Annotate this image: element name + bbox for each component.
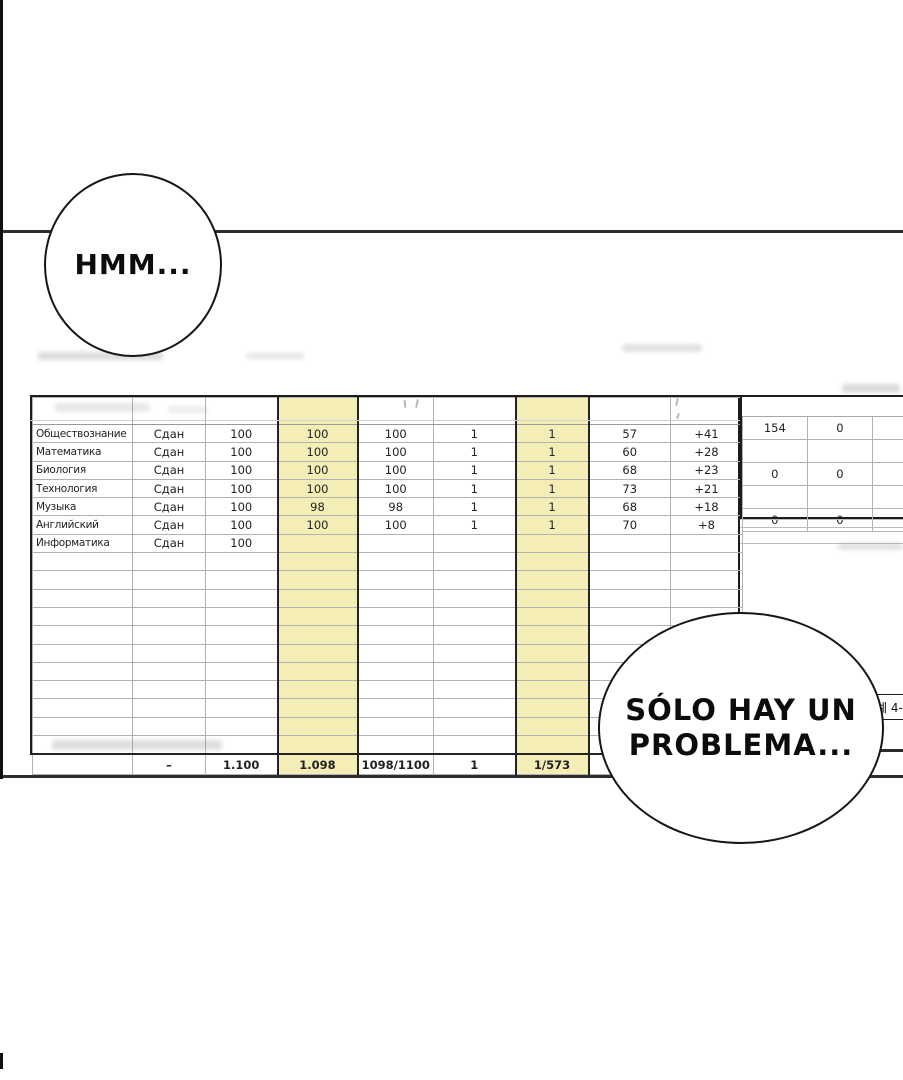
print-smudge (246, 353, 304, 359)
sheet-cell (807, 440, 873, 463)
speech-bubble-hmm: HMM... (44, 173, 222, 357)
sheet-cell (358, 626, 434, 644)
empty-row (33, 553, 743, 571)
sheet-cell: 1/573 (516, 754, 589, 775)
sheet-cell (133, 607, 206, 625)
sheet-cell (278, 571, 358, 589)
summary-row: 000 (743, 509, 903, 532)
header-hairline (30, 420, 740, 421)
sheet-cell (206, 717, 278, 735)
sheet-cell (671, 571, 743, 589)
sheet-cell (206, 626, 278, 644)
speech-text: HMM... (74, 248, 191, 282)
sheet-cell: 1.100 (206, 754, 278, 775)
sheet-cell: Сдан (133, 534, 206, 552)
print-smudge (52, 740, 222, 750)
sheet-cell (516, 534, 589, 552)
sheet-cell (33, 571, 133, 589)
sheet-cell: 57 (589, 425, 671, 443)
sheet-cell: 1 (434, 479, 516, 497)
sheet-cell (434, 681, 516, 699)
comic-page: ОбществознаниеСдан1001001001157+41Матема… (0, 0, 903, 1080)
sheet-cell: 100 (358, 516, 434, 534)
sheet-cell: 0 (743, 509, 808, 532)
sheet-cell (671, 534, 743, 552)
sheet-cell: 100 (358, 443, 434, 461)
sheet-cell (278, 626, 358, 644)
table-row: БиологияСдан1001001001168+23 (33, 461, 743, 479)
sheet-cell: 154 (743, 417, 808, 440)
summary-header-row (743, 397, 903, 417)
sheet-cell: Сдан (133, 498, 206, 516)
sheet-cell (33, 644, 133, 662)
sheet-cell (206, 681, 278, 699)
table-row: ИнформатикаСдан100 (33, 534, 743, 552)
sheet-cell (434, 699, 516, 717)
sheet-cell (873, 486, 903, 509)
sheet-cell (133, 662, 206, 680)
sheet-cell (358, 681, 434, 699)
sheet-cell (807, 486, 873, 509)
sheet-cell (358, 553, 434, 571)
sheet-cell (589, 607, 671, 625)
sheet-cell (33, 699, 133, 717)
sheet-cell: 100 (206, 534, 278, 552)
sheet-cell: +23 (671, 461, 743, 479)
sheet-cell: 1 (434, 461, 516, 479)
sheet-cell (278, 553, 358, 571)
table-row: МузыкаСдан10098981168+18 (33, 498, 743, 516)
sheet-cell (206, 644, 278, 662)
sheet-cell (278, 589, 358, 607)
print-smudge (838, 543, 903, 550)
sheet-cell (743, 397, 903, 417)
sheet-cell: +8 (671, 516, 743, 534)
sheet-cell (133, 717, 206, 735)
sheet-cell: 1 (434, 754, 516, 775)
sheet-cell (278, 699, 358, 717)
sheet-cell: 0 (873, 509, 903, 532)
sheet-cell: 1 (516, 498, 589, 516)
sheet-cell (206, 589, 278, 607)
sheet-cell: 1 (516, 479, 589, 497)
sheet-cell (133, 571, 206, 589)
sheet-cell (33, 681, 133, 699)
empty-row (33, 571, 743, 589)
sheet-cell (206, 699, 278, 717)
sheet-cell: 100 (358, 461, 434, 479)
print-smudge (622, 344, 702, 352)
sheet-cell (33, 553, 133, 571)
sheet-cell (434, 736, 516, 755)
sheet-cell (206, 662, 278, 680)
empty-row (33, 607, 743, 625)
sheet-cell (589, 571, 671, 589)
table-row: ОбществознаниеСдан1001001001157+41 (33, 425, 743, 443)
sheet-cell: Сдан (133, 443, 206, 461)
sheet-cell: Английский (33, 516, 133, 534)
sheet-cell (33, 589, 133, 607)
sheet-cell (434, 626, 516, 644)
sheet-cell (278, 681, 358, 699)
sheet-cell: Технология (33, 479, 133, 497)
sheet-cell: 100 (278, 479, 358, 497)
sheet-cell (33, 717, 133, 735)
sheet-cell: – (133, 754, 206, 775)
summary-row (743, 486, 903, 509)
sheet-cell (206, 553, 278, 571)
sheet-cell (516, 589, 589, 607)
sheet-cell (358, 607, 434, 625)
sheet-cell: 0 (743, 463, 808, 486)
sheet-cell (358, 644, 434, 662)
sheet-cell (33, 626, 133, 644)
sheet-cell (358, 736, 434, 755)
summary-table: 15400000000 (740, 395, 903, 519)
sheet-cell (434, 534, 516, 552)
sheet-cell: 100 (206, 443, 278, 461)
sheet-cell: +18 (671, 498, 743, 516)
sheet-cell: 100 (278, 443, 358, 461)
print-smudge (168, 406, 208, 413)
table-row: АнглийскийСдан1001001001170+8 (33, 516, 743, 534)
sheet-cell: +41 (671, 425, 743, 443)
sheet-cell: 98 (278, 498, 358, 516)
sheet-cell (278, 736, 358, 755)
sheet-cell (278, 662, 358, 680)
sheet-cell: 1 (516, 425, 589, 443)
sheet-cell (516, 571, 589, 589)
sheet-cell: Биология (33, 461, 133, 479)
sheet-cell: 100 (278, 425, 358, 443)
sheet-cell (516, 607, 589, 625)
sheet-cell: 0 (807, 417, 873, 440)
sheet-cell (516, 626, 589, 644)
sheet-cell: 0 (873, 417, 903, 440)
speech-bubble-problema: SÓLO HAY UN PROBLEMA... (598, 612, 884, 844)
sheet-cell: Информатика (33, 534, 133, 552)
sheet-cell (358, 699, 434, 717)
sheet-cell: 1 (434, 443, 516, 461)
sheet-cell: 100 (206, 516, 278, 534)
sheet-cell (516, 553, 589, 571)
speech-text-line1: SÓLO HAY UN (625, 693, 857, 728)
sheet-cell (589, 589, 671, 607)
sheet-cell (278, 534, 358, 552)
sheet-cell (278, 717, 358, 735)
print-smudge (842, 384, 900, 393)
sheet-cell: 100 (206, 479, 278, 497)
sheet-cell: +28 (671, 443, 743, 461)
sheet-cell (434, 662, 516, 680)
sheet-cell: Музыка (33, 498, 133, 516)
sheet-cell: 0 (807, 509, 873, 532)
sheet-cell: 0 (873, 463, 903, 486)
sheet-cell: 1 (516, 461, 589, 479)
summary-grid: 15400000000 (742, 397, 903, 532)
sheet-cell: +21 (671, 479, 743, 497)
sheet-cell (516, 699, 589, 717)
sheet-cell: 100 (358, 425, 434, 443)
speech-text-line2: PROBLEMA... (629, 728, 854, 763)
sheet-cell: 70 (589, 516, 671, 534)
sheet-cell: 100 (358, 479, 434, 497)
sheet-cell (434, 717, 516, 735)
sheet-cell (133, 589, 206, 607)
sheet-cell: 1 (516, 516, 589, 534)
sheet-cell (358, 589, 434, 607)
sheet-cell (358, 662, 434, 680)
sheet-cell: 1 (434, 425, 516, 443)
sheet-cell (516, 644, 589, 662)
sheet-cell: 60 (589, 443, 671, 461)
sheet-cell: 1 (516, 443, 589, 461)
sheet-cell (278, 644, 358, 662)
sheet-cell: 68 (589, 461, 671, 479)
sheet-cell (133, 553, 206, 571)
sheet-cell (434, 607, 516, 625)
sheet-cell (33, 754, 133, 775)
sheet-cell (743, 486, 808, 509)
sheet-cell: 1.098 (278, 754, 358, 775)
sheet-cell (589, 553, 671, 571)
summary-row: 15400 (743, 417, 903, 440)
sheet-cell: Математика (33, 443, 133, 461)
sheet-cell (516, 736, 589, 755)
sheet-cell (516, 662, 589, 680)
sheet-cell: 0 (807, 463, 873, 486)
sheet-cell (206, 607, 278, 625)
sheet-cell: 100 (206, 498, 278, 516)
sheet-cell: Сдан (133, 461, 206, 479)
sheet-cell: Обществознание (33, 425, 133, 443)
sheet-cell: Сдан (133, 516, 206, 534)
gridline (740, 519, 903, 520)
sheet-cell: 100 (278, 461, 358, 479)
sheet-cell (516, 717, 589, 735)
sheet-cell (743, 440, 808, 463)
sheet-cell (133, 626, 206, 644)
table-row: МатематикаСдан1001001001160+28 (33, 443, 743, 461)
sheet-cell (358, 534, 434, 552)
sheet-cell: 1098/1100 (358, 754, 434, 775)
sheet-cell: 98 (358, 498, 434, 516)
sheet-cell: 100 (278, 516, 358, 534)
sheet-cell (278, 607, 358, 625)
sheet-cell (434, 571, 516, 589)
gridline (740, 527, 903, 528)
sheet-cell (434, 589, 516, 607)
sheet-cell: 100 (206, 461, 278, 479)
sheet-cell (434, 553, 516, 571)
sheet-cell (671, 589, 743, 607)
sheet-cell (358, 571, 434, 589)
sheet-cell (671, 553, 743, 571)
sheet-cell (516, 681, 589, 699)
sheet-cell (206, 571, 278, 589)
empty-row (33, 589, 743, 607)
summary-row (743, 440, 903, 463)
sheet-cell (133, 644, 206, 662)
sheet-cell: Сдан (133, 479, 206, 497)
sheet-cell (434, 644, 516, 662)
sheet-cell: 73 (589, 479, 671, 497)
sheet-cell (133, 681, 206, 699)
sheet-cell (589, 534, 671, 552)
sheet-cell: 1 (434, 516, 516, 534)
empty-row (33, 626, 743, 644)
sheet-cell (358, 717, 434, 735)
sheet-cell: 1 (434, 498, 516, 516)
print-smudge (55, 403, 150, 412)
panel-left-border (0, 0, 3, 779)
sheet-cell (873, 440, 903, 463)
sheet-cell: 68 (589, 498, 671, 516)
sheet-cell (133, 699, 206, 717)
table-row: ТехнологияСдан1001001001173+21 (33, 479, 743, 497)
sheet-cell: Сдан (133, 425, 206, 443)
summary-row: 000 (743, 463, 903, 486)
sheet-cell: 100 (206, 425, 278, 443)
next-panel-left-border (0, 1053, 3, 1069)
sheet-cell (33, 662, 133, 680)
sheet-cell (33, 607, 133, 625)
